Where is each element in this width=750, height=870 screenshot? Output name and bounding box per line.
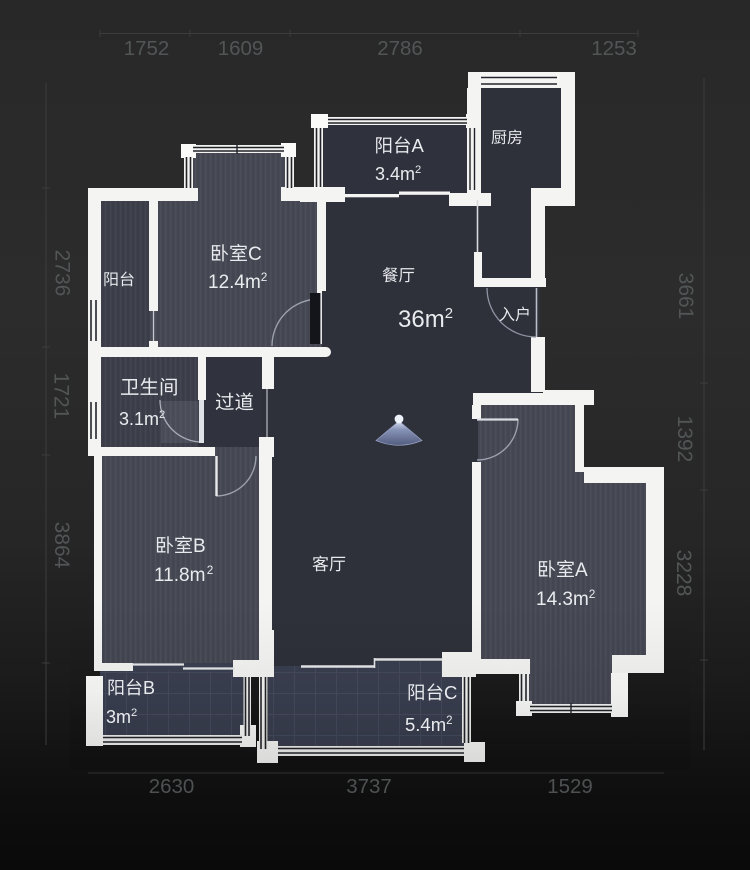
svg-text:2: 2 bbox=[446, 715, 452, 727]
svg-text:2736: 2736 bbox=[51, 250, 74, 297]
svg-text:3737: 3737 bbox=[346, 775, 392, 798]
svg-text:2: 2 bbox=[207, 563, 214, 577]
svg-text:C: C bbox=[248, 244, 262, 265]
svg-text:A: A bbox=[575, 560, 588, 581]
svg-text:2: 2 bbox=[159, 409, 165, 421]
svg-text:2: 2 bbox=[415, 164, 421, 176]
svg-text:3864: 3864 bbox=[50, 522, 73, 569]
svg-text:3661: 3661 bbox=[674, 273, 697, 320]
svg-text:1253: 1253 bbox=[591, 37, 637, 60]
svg-text:3228: 3228 bbox=[672, 550, 695, 597]
svg-text:11.8m: 11.8m bbox=[154, 565, 205, 586]
svg-text:14.3m: 14.3m bbox=[536, 589, 589, 610]
svg-text:2630: 2630 bbox=[149, 775, 195, 798]
svg-text:3.4m: 3.4m bbox=[375, 164, 415, 184]
svg-text:3.1m: 3.1m bbox=[119, 409, 159, 429]
svg-text:2: 2 bbox=[445, 306, 453, 322]
svg-text:12.4m: 12.4m bbox=[208, 272, 261, 293]
svg-text:2: 2 bbox=[261, 270, 268, 284]
svg-text:B: B bbox=[143, 678, 155, 698]
svg-text:1721: 1721 bbox=[50, 373, 73, 420]
svg-text:1392: 1392 bbox=[673, 416, 696, 463]
svg-text:2786: 2786 bbox=[377, 37, 423, 60]
svg-text:1752: 1752 bbox=[124, 37, 170, 60]
svg-text:1529: 1529 bbox=[547, 775, 593, 798]
svg-text:2: 2 bbox=[589, 587, 596, 601]
svg-text:A: A bbox=[412, 135, 425, 156]
svg-text:B: B bbox=[193, 536, 206, 557]
svg-text:2: 2 bbox=[131, 707, 137, 719]
svg-text:1609: 1609 bbox=[218, 37, 264, 60]
svg-text:5.4m: 5.4m bbox=[405, 714, 446, 735]
svg-text:36m: 36m bbox=[398, 306, 445, 333]
svg-text:3m: 3m bbox=[106, 707, 131, 727]
svg-text:C: C bbox=[444, 682, 457, 703]
